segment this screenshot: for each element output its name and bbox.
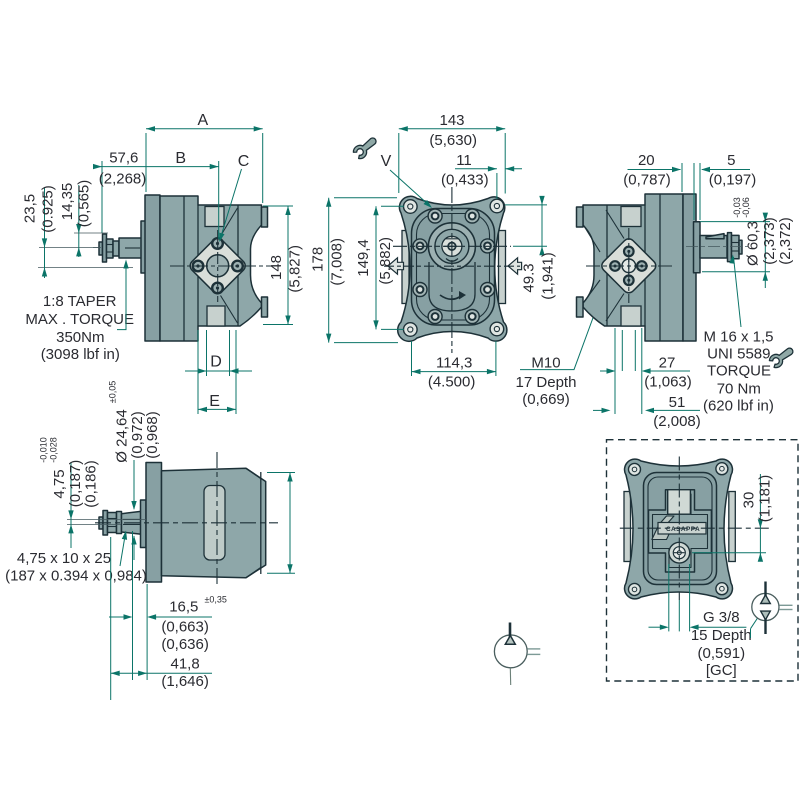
svg-text:(1,646): (1,646)	[161, 673, 209, 690]
svg-text:Ø 60,3: Ø 60,3	[745, 221, 762, 266]
svg-text:114,3: 114,3	[436, 355, 472, 372]
svg-text:14,35: 14,35	[59, 183, 76, 221]
svg-text:51: 51	[669, 394, 686, 411]
svg-text:(0,636): (0,636)	[161, 636, 209, 653]
svg-text:(0,187): (0,187)	[67, 460, 84, 508]
svg-text:UNI 5589: UNI 5589	[707, 346, 770, 363]
svg-text:(0.925): (0.925)	[40, 185, 57, 233]
svg-text:Ø 24,64: Ø 24,64	[114, 409, 131, 462]
svg-text:(3098 lbf in): (3098 lbf in)	[41, 346, 120, 363]
svg-text:(1,181): (1,181)	[756, 475, 773, 523]
svg-text:350Nm: 350Nm	[56, 329, 104, 346]
svg-text:(5,630): (5,630)	[429, 132, 477, 149]
svg-text:(0,968): (0,968)	[144, 411, 161, 459]
svg-text:(2,268): (2,268)	[99, 171, 147, 188]
svg-text:41,8: 41,8	[170, 656, 199, 673]
svg-text:-0,028: -0,028	[49, 437, 59, 463]
svg-text:4,75 x 10 x 25: 4,75 x 10 x 25	[17, 550, 111, 567]
svg-text:(620 lbf in): (620 lbf in)	[703, 398, 774, 415]
svg-text:(0,669): (0,669)	[522, 391, 570, 408]
svg-text:(2,373): (2,373)	[761, 217, 778, 265]
svg-text:D: D	[210, 354, 222, 371]
svg-text:4,75: 4,75	[51, 469, 68, 498]
svg-text:C: C	[238, 153, 250, 170]
svg-text:M10: M10	[531, 355, 560, 372]
svg-text:17 Depth: 17 Depth	[516, 374, 577, 391]
svg-text:-0,010: -0,010	[39, 437, 49, 463]
svg-text:16,5: 16,5	[169, 599, 198, 616]
svg-text:B: B	[175, 150, 186, 167]
svg-text:49.3: 49.3	[521, 263, 538, 292]
svg-text:15 Depth: 15 Depth	[691, 627, 752, 644]
svg-text:178: 178	[310, 247, 327, 272]
svg-text:11: 11	[456, 152, 472, 169]
svg-text:(2,372): (2,372)	[777, 217, 794, 265]
svg-text:(0,663): (0,663)	[161, 619, 209, 636]
svg-text:[GC]: [GC]	[706, 662, 737, 679]
svg-text:(187 x 0.394 x 0,984): (187 x 0.394 x 0,984)	[5, 568, 147, 585]
svg-text:V: V	[381, 153, 392, 170]
svg-text:(1,063): (1,063)	[644, 374, 692, 391]
svg-text:70 Nm: 70 Nm	[717, 381, 761, 398]
svg-text:-0,06: -0,06	[741, 197, 751, 218]
svg-text:(0,433): (0,433)	[441, 172, 489, 189]
svg-text:23,5: 23,5	[22, 194, 39, 223]
svg-text:27: 27	[659, 355, 676, 372]
svg-text:30: 30	[741, 492, 758, 509]
svg-text:E: E	[209, 393, 220, 410]
svg-text:G 3/8: G 3/8	[703, 609, 740, 626]
svg-text:(0,787): (0,787)	[623, 172, 671, 189]
svg-text:(5,827): (5,827)	[287, 245, 304, 293]
svg-text:(0,591): (0,591)	[698, 645, 746, 662]
svg-text:(0,197): (0,197)	[709, 172, 757, 189]
svg-text:(4.500): (4.500)	[428, 374, 476, 391]
svg-text:149,4: 149,4	[355, 239, 372, 277]
svg-text:M 16 x 1,5: M 16 x 1,5	[703, 329, 773, 346]
svg-text:(1,941): (1,941)	[540, 252, 557, 300]
svg-text:(0,186): (0,186)	[83, 460, 100, 508]
svg-text:(2,008): (2,008)	[653, 413, 701, 430]
svg-text:1:8 TAPER: 1:8 TAPER	[43, 293, 117, 310]
svg-text:CASAPPA: CASAPPA	[666, 526, 700, 533]
svg-text:MAX . TORQUE: MAX . TORQUE	[25, 311, 134, 328]
svg-text:TORQUE: TORQUE	[707, 363, 771, 380]
svg-text:±0,35: ±0,35	[204, 595, 226, 605]
svg-text:(7,008): (7,008)	[329, 238, 346, 286]
svg-text:148: 148	[268, 255, 285, 280]
svg-text:143: 143	[439, 112, 464, 129]
svg-text:20: 20	[638, 152, 655, 169]
svg-text:(5,882): (5,882)	[377, 237, 394, 285]
svg-text:A: A	[197, 112, 208, 129]
svg-text:57,6: 57,6	[109, 150, 138, 167]
svg-text:5: 5	[727, 152, 735, 169]
svg-text:±0,05: ±0,05	[108, 381, 118, 403]
svg-text:(0,565): (0,565)	[76, 180, 93, 228]
